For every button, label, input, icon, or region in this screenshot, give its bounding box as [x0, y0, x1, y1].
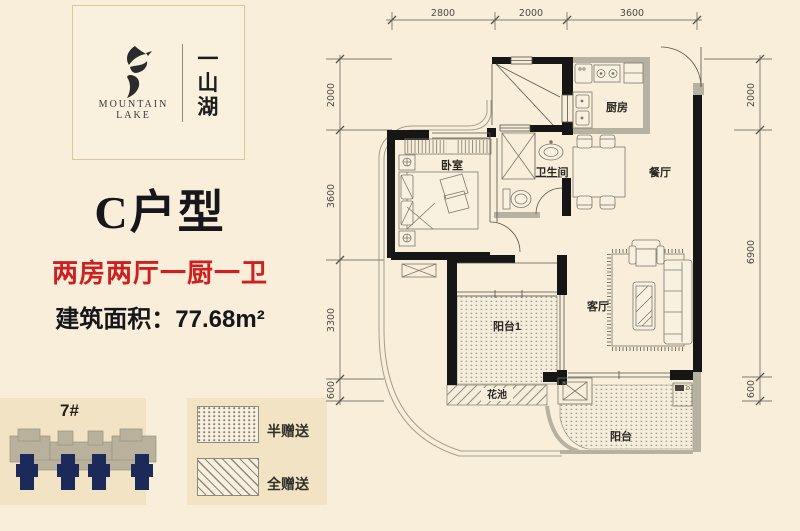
brand-name-en-line2: LAKE	[116, 110, 151, 121]
legend-swatch-half-gift	[197, 406, 259, 443]
label-kitchen: 厨房	[606, 100, 628, 114]
dim-top-2800: 2800	[431, 8, 455, 19]
kitchen-sink	[573, 92, 592, 128]
stove	[594, 65, 620, 82]
kitchen-cabinet	[624, 63, 643, 83]
label-bathroom: 卫生间	[536, 165, 569, 179]
unit-layout-text: 两房两厅一厨一卫	[0, 253, 320, 290]
dim-left-3300: 3300	[326, 308, 337, 332]
dim-left-2000: 2000	[326, 83, 337, 107]
brand-cn-char-3: 湖	[197, 95, 218, 119]
nightstand-bottom	[399, 231, 415, 246]
label-balcony: 阳台	[610, 429, 632, 443]
dim-top-3600: 3600	[620, 8, 644, 19]
armchair	[629, 240, 664, 266]
dim-left-3600: 3600	[326, 184, 337, 208]
label-flowerbed-group: 花池	[481, 388, 513, 401]
dim-right-600: 600	[746, 380, 757, 398]
balcony1-half-gift-area	[457, 296, 557, 384]
dim-top-2000: 2000	[519, 8, 543, 19]
wash-basin	[539, 141, 563, 160]
closet	[405, 139, 491, 154]
bathroom-door-arc	[536, 188, 562, 214]
logo-divider	[182, 44, 183, 122]
bed	[399, 172, 478, 229]
unit-area-text: 建筑面积：77.68m²	[0, 299, 320, 334]
nightstand-top	[399, 155, 415, 170]
unit-type-title: C户型	[0, 176, 320, 242]
brand-name-cn: 一 山 湖	[197, 47, 218, 119]
bedroom-ac-platform	[402, 264, 436, 277]
phoenix-icon	[113, 45, 153, 99]
coffee-table	[633, 282, 655, 330]
brand-logo-box: MOUNTAIN LAKE 一 山 湖	[72, 5, 245, 160]
entry-door-arc	[661, 47, 701, 87]
duct-shaft	[502, 133, 535, 179]
brand-logo-left: MOUNTAIN LAKE	[99, 45, 169, 121]
building-footprint-diagram	[2, 426, 177, 502]
legend-swatch-full-gift	[197, 458, 259, 496]
bedroom-door-arc	[490, 222, 520, 252]
ac-platform	[558, 378, 592, 404]
legend-label-half-gift: 半赠送	[267, 421, 309, 441]
sofa	[664, 260, 692, 344]
toilet	[503, 189, 531, 209]
label-bedroom: 卧室	[441, 158, 463, 172]
brand-cn-char-1: 一	[197, 47, 218, 71]
dim-right-6900: 6900	[746, 240, 757, 264]
label-living: 客厅	[586, 299, 609, 313]
brand-cn-char-2: 山	[197, 71, 218, 95]
legend-label-full-gift: 全赠送	[267, 474, 309, 494]
brand-name-en-line1: MOUNTAIN	[99, 99, 169, 110]
label-flowerbed: 花池	[487, 388, 507, 401]
dim-right-2000: 2000	[746, 83, 757, 107]
label-dining: 餐厅	[648, 165, 671, 179]
dining-table	[573, 147, 625, 197]
fridge	[575, 64, 592, 83]
flyer-page: { "brand": { "en_line1": "MOUNTAIN", "en…	[0, 0, 800, 531]
dim-left-600: 600	[326, 381, 337, 399]
floor-plan: 2800 2000 3600 2000 3600 3300 600 2000 6…	[320, 0, 800, 531]
building-number-label: 7#	[60, 401, 120, 421]
label-balcony1: 阳台1	[493, 319, 521, 333]
gift-area-patterns	[447, 296, 693, 452]
